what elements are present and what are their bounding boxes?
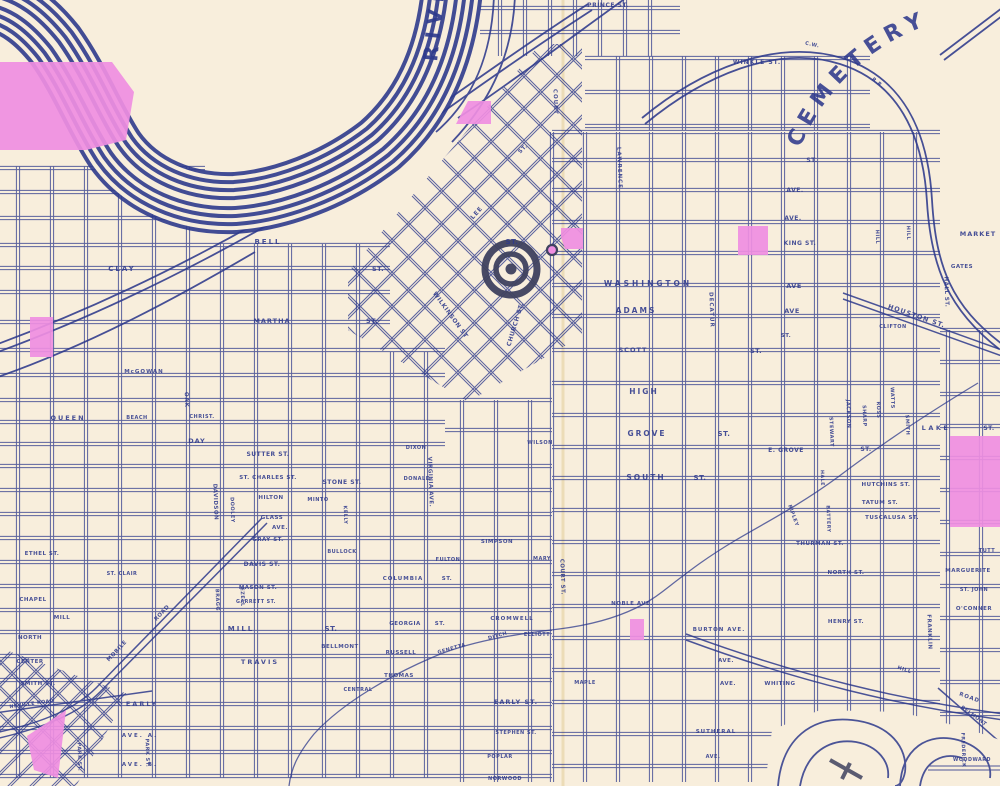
- label-georgia: GEORGIA: [389, 621, 421, 627]
- label-beach: BEACH: [126, 415, 147, 421]
- label-thomas: THOMAS: [384, 673, 414, 679]
- label-smith: SMITH: [904, 415, 911, 436]
- label-davidson: DAVIDSON: [211, 484, 218, 521]
- label-grove: GROVE: [627, 429, 666, 438]
- label-court: COURT: [552, 89, 559, 115]
- label-st-clair: ST. CLAIR: [107, 571, 138, 577]
- label-clifton: CLIFTON: [879, 324, 906, 330]
- label-winkle-st: WINKLE ST.: [733, 59, 781, 66]
- label-st: ST.: [718, 430, 731, 438]
- label-gates: GATES: [951, 264, 973, 270]
- label-travis: TRAVIS: [241, 658, 279, 666]
- label-st: ST.: [694, 474, 707, 482]
- bullseye-center-dot: [506, 264, 517, 275]
- label-st: ST.: [442, 576, 452, 582]
- label-glass: GLASS: [261, 515, 283, 521]
- label-watts: WATTS: [889, 387, 896, 409]
- label-oak: OAK: [183, 392, 190, 408]
- label-henry-st: HENRY ST.: [828, 619, 864, 625]
- label-o-conner: O'CONNER: [956, 606, 993, 612]
- label-maple: MAPLE: [574, 680, 596, 686]
- label-st: ST.: [372, 265, 384, 273]
- label-sutter-st: SUTTER ST.: [246, 451, 289, 458]
- label-north: NORTH: [18, 635, 42, 641]
- label-sharp: SHARP: [861, 405, 868, 427]
- label-thurman-st: THURMAN ST.: [796, 541, 844, 547]
- label-st-charles-st: ST. CHARLES ST.: [239, 475, 297, 481]
- label-st: ST.: [506, 238, 519, 246]
- label-poplar: POPLAR: [487, 754, 513, 760]
- label-ave: AVE.: [720, 681, 736, 687]
- label-hilton: HILTON: [258, 495, 283, 501]
- label-davis-st: DAVIS ST.: [244, 561, 281, 568]
- label-st: ST.: [325, 625, 338, 633]
- label-bellmont: BELLMONT: [321, 644, 358, 650]
- highlight-west-lot: [30, 317, 53, 357]
- label-north-st: NORTH ST.: [827, 570, 864, 576]
- label-queen: QUEEN: [50, 414, 85, 422]
- label-hutchins-st: HUTCHINS ST.: [862, 482, 911, 488]
- label-mcgowan: McGOWAN: [124, 369, 164, 375]
- label-prince-st: PRINCE ST.: [587, 2, 629, 9]
- label-hale: HALE: [819, 470, 826, 486]
- label-sutheral: SUTHERAL: [696, 729, 737, 735]
- label-kelly: KELLY: [342, 505, 349, 524]
- highlight-south-lot: [630, 619, 644, 640]
- pin-marker: [547, 245, 557, 255]
- label-franklin: FRANKLIN: [925, 614, 932, 649]
- label-st: ST.: [806, 157, 817, 164]
- label-ave-a: AVE. A.: [122, 733, 158, 739]
- label-noble-ave: NOBLE AVE.: [611, 601, 653, 607]
- label-high: HIGH: [629, 387, 659, 396]
- label-simpson: SIMPSON: [481, 539, 513, 545]
- label-minto: MINTO: [307, 497, 328, 503]
- label-hill: HILL: [874, 230, 881, 245]
- label-day: DAY: [188, 437, 206, 445]
- label-ave: AVE: [784, 307, 800, 315]
- label-dixon: DIXON: [406, 445, 427, 451]
- label-st: ST.: [983, 425, 994, 432]
- label-marguerite: MARGUERITE: [945, 568, 991, 574]
- label-ave: AVE: [786, 282, 802, 290]
- highlight-king-st-lot: [738, 226, 768, 255]
- label-ave: AVE.: [272, 525, 288, 531]
- label-ross: ROSS: [875, 401, 882, 418]
- label-ezell: EZELL: [239, 587, 246, 607]
- label-ave-b: AVE. B.: [122, 762, 158, 768]
- label-gray-st: GRAY ST.: [252, 537, 283, 543]
- label-woodward: WOODWARD: [953, 757, 991, 763]
- label-stewart: STEWART: [827, 417, 834, 447]
- label-dooley: DOOLEY: [229, 497, 236, 523]
- label-burton-ave: BURTON AVE.: [693, 627, 746, 633]
- historic-city-map: PRINCE ST.WINKLE ST.C.W.R.R.MARKETGATESS…: [0, 0, 1000, 786]
- label-st-john: ST. JOHN: [960, 587, 988, 593]
- label-wilson: WILSON: [527, 440, 553, 446]
- label-lake: LAKE: [922, 424, 951, 432]
- label-central: CENTRAL: [343, 687, 372, 693]
- label-hill: HILL: [905, 226, 912, 241]
- label-donald: DONALD: [404, 476, 431, 482]
- highlight-northwest-tract: [0, 62, 134, 150]
- label-south: SOUTH: [626, 473, 665, 482]
- label-early: EARLY: [126, 700, 158, 708]
- label-e-grove: E. GROVE: [768, 447, 804, 454]
- label-fulton: FULTON: [436, 557, 461, 563]
- label-mill: MILL: [228, 625, 255, 633]
- label-russell: RUSSELL: [386, 650, 417, 656]
- label-ethel-st: ETHEL ST.: [25, 551, 60, 557]
- label-park-st: PARK ST.: [144, 739, 151, 768]
- label-ave: AVE.: [786, 187, 803, 194]
- label-whiting: WHITING: [764, 681, 795, 687]
- label-chapel: CHAPEL: [19, 597, 46, 603]
- label-tutt: TUTT: [979, 548, 995, 554]
- label-st: ST.: [750, 347, 762, 355]
- label-hall-st: HALL ST.: [942, 276, 949, 307]
- label-bragg: BRAGG: [214, 589, 221, 611]
- label-smith-st: SMITH ST.: [20, 681, 55, 687]
- highlight-east-tract: [950, 436, 1000, 527]
- label-stephen-st: STEPHEN ST.: [495, 730, 536, 736]
- label-cromwell: CROMWELL: [490, 616, 533, 622]
- label-bullock: BULLOCK: [327, 549, 357, 555]
- label-st: ST.: [781, 333, 791, 339]
- label-center: CENTER: [16, 659, 43, 665]
- label-market: MARKET: [960, 230, 996, 238]
- label-bell: BELL: [254, 238, 281, 246]
- label-christ: CHRIST.: [189, 414, 214, 420]
- label-st: ST.: [860, 446, 871, 453]
- label-early-st: EARLY ST.: [494, 698, 538, 706]
- label-tuscalusa-st: TUSCALUSA ST.: [865, 515, 919, 521]
- label-tatum-st: TATUM ST.: [862, 500, 898, 506]
- label-court-st: COURT ST.: [558, 559, 565, 595]
- label-battery: BATTERY: [825, 505, 832, 533]
- label-columbia: COLUMBIA: [383, 576, 423, 582]
- label-mill: MILL: [54, 615, 71, 621]
- label-jackson: JACKSON: [844, 398, 851, 428]
- label-ave: AVE.: [718, 658, 734, 664]
- highlight-downtown-lot: [561, 228, 583, 249]
- label-king-st: KING ST.: [784, 240, 817, 247]
- label-martha: MARTHA: [253, 317, 290, 325]
- label-decatur: DECATUR: [707, 292, 714, 328]
- label-scott: SCOTT: [619, 346, 648, 354]
- label-clay: CLAY: [108, 265, 135, 273]
- label-elliott: ELLIOTT: [524, 632, 550, 638]
- label-ave: AVE.: [706, 754, 721, 760]
- label-mary: MARY: [533, 556, 551, 562]
- label-washington: WASHINGTON: [604, 279, 692, 288]
- map-canvas: PRINCE ST.WINKLE ST.C.W.R.R.MARKETGATESS…: [0, 0, 1000, 786]
- label-st: ST.: [435, 621, 445, 627]
- label-adams: ADAMS: [616, 306, 657, 315]
- label-norwood: NORWOOD: [488, 776, 522, 782]
- label-st: ST.: [366, 317, 378, 325]
- label-ave: AVE.: [784, 215, 801, 222]
- label-park-st: PARK ST.: [76, 743, 83, 772]
- label-stone-st: STONE ST.: [322, 479, 361, 486]
